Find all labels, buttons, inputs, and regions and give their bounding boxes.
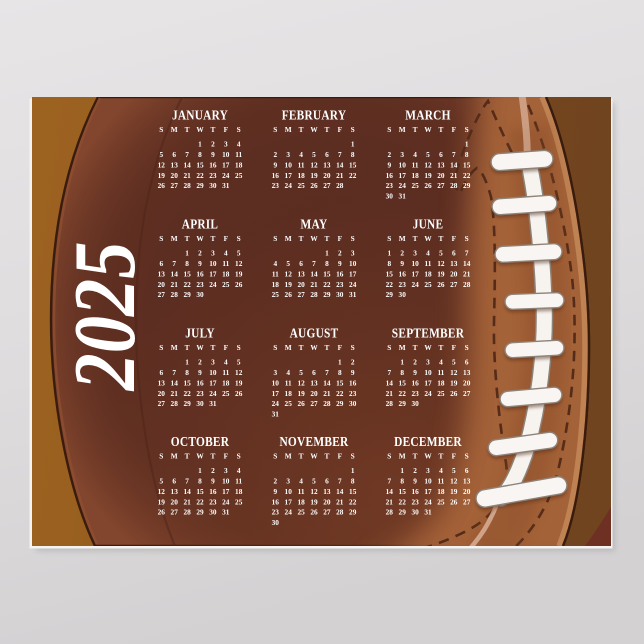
svg-text:10: 10: [411, 259, 419, 268]
svg-text:20: 20: [323, 497, 331, 506]
svg-text:22: 22: [386, 280, 394, 289]
svg-text:22: 22: [349, 171, 357, 180]
svg-text:31: 31: [272, 410, 280, 419]
svg-text:27: 27: [297, 290, 305, 299]
svg-text:28: 28: [323, 399, 331, 408]
svg-text:27: 27: [437, 181, 445, 190]
svg-text:T: T: [438, 125, 443, 134]
svg-text:2: 2: [198, 249, 202, 258]
svg-text:8: 8: [351, 150, 355, 159]
svg-text:5: 5: [452, 466, 456, 475]
svg-text:W: W: [424, 451, 432, 460]
svg-text:JUNE: JUNE: [413, 217, 444, 232]
svg-text:18: 18: [285, 389, 293, 398]
svg-text:19: 19: [424, 171, 432, 180]
svg-text:22: 22: [183, 280, 191, 289]
svg-text:15: 15: [336, 378, 344, 387]
svg-text:F: F: [452, 343, 457, 352]
svg-text:T: T: [413, 343, 418, 352]
svg-text:21: 21: [336, 497, 344, 506]
svg-text:26: 26: [297, 399, 305, 408]
svg-text:21: 21: [323, 389, 331, 398]
svg-text:5: 5: [439, 249, 443, 258]
svg-text:1: 1: [338, 358, 342, 367]
svg-text:30: 30: [209, 508, 217, 517]
svg-text:18: 18: [424, 269, 432, 278]
svg-text:23: 23: [336, 280, 344, 289]
svg-text:11: 11: [222, 368, 229, 377]
svg-text:10: 10: [272, 378, 280, 387]
svg-text:30: 30: [272, 518, 280, 527]
svg-text:T: T: [185, 234, 190, 243]
svg-text:T: T: [210, 234, 215, 243]
svg-text:28: 28: [183, 508, 191, 517]
svg-text:25: 25: [411, 181, 419, 190]
svg-text:16: 16: [399, 269, 407, 278]
svg-text:W: W: [424, 125, 432, 134]
svg-text:28: 28: [336, 181, 344, 190]
svg-text:20: 20: [450, 269, 458, 278]
svg-text:6: 6: [465, 358, 469, 367]
svg-text:M: M: [399, 234, 406, 243]
svg-text:15: 15: [349, 160, 357, 169]
svg-text:30: 30: [349, 399, 357, 408]
svg-text:S: S: [273, 451, 277, 460]
svg-text:15: 15: [183, 378, 191, 387]
svg-text:16: 16: [196, 378, 204, 387]
svg-text:13: 13: [310, 378, 318, 387]
svg-text:2: 2: [198, 358, 202, 367]
svg-text:T: T: [438, 343, 443, 352]
svg-text:31: 31: [222, 181, 230, 190]
svg-text:29: 29: [463, 181, 471, 190]
svg-text:DECEMBER: DECEMBER: [394, 434, 462, 449]
svg-text:12: 12: [235, 259, 243, 268]
svg-text:12: 12: [437, 259, 445, 268]
svg-text:13: 13: [463, 368, 471, 377]
svg-text:17: 17: [222, 160, 230, 169]
svg-text:21: 21: [450, 171, 458, 180]
svg-text:12: 12: [285, 269, 293, 278]
svg-text:F: F: [338, 343, 343, 352]
svg-text:19: 19: [158, 171, 166, 180]
svg-text:2: 2: [413, 358, 417, 367]
svg-text:15: 15: [183, 269, 191, 278]
svg-text:23: 23: [272, 181, 280, 190]
svg-text:S: S: [351, 234, 355, 243]
svg-text:26: 26: [310, 508, 318, 517]
svg-text:1: 1: [351, 466, 355, 475]
svg-text:W: W: [196, 451, 204, 460]
svg-text:13: 13: [171, 487, 179, 496]
svg-text:2: 2: [211, 466, 215, 475]
svg-text:F: F: [224, 451, 229, 460]
svg-text:20: 20: [158, 280, 166, 289]
svg-text:31: 31: [222, 508, 230, 517]
svg-text:T: T: [185, 451, 190, 460]
svg-text:F: F: [338, 451, 343, 460]
svg-text:6: 6: [172, 150, 176, 159]
svg-text:14: 14: [386, 487, 394, 496]
svg-text:5: 5: [452, 358, 456, 367]
svg-text:15: 15: [399, 378, 407, 387]
svg-text:S: S: [237, 125, 241, 134]
svg-text:F: F: [224, 343, 229, 352]
svg-text:21: 21: [386, 389, 394, 398]
svg-text:22: 22: [399, 497, 407, 506]
svg-text:2: 2: [351, 358, 355, 367]
svg-text:20: 20: [171, 497, 179, 506]
svg-text:13: 13: [437, 160, 445, 169]
svg-text:5: 5: [312, 477, 316, 486]
svg-text:12: 12: [158, 160, 166, 169]
svg-text:31: 31: [349, 290, 357, 299]
svg-text:1: 1: [351, 140, 355, 149]
svg-text:22: 22: [399, 389, 407, 398]
svg-text:T: T: [324, 125, 329, 134]
svg-text:28: 28: [463, 280, 471, 289]
svg-text:5: 5: [299, 368, 303, 377]
svg-text:4: 4: [299, 477, 303, 486]
svg-text:W: W: [196, 343, 204, 352]
svg-text:18: 18: [297, 497, 305, 506]
svg-text:29: 29: [399, 508, 407, 517]
svg-text:10: 10: [222, 150, 230, 159]
svg-text:8: 8: [400, 477, 404, 486]
svg-text:T: T: [324, 451, 329, 460]
svg-text:27: 27: [158, 399, 166, 408]
svg-text:9: 9: [198, 368, 202, 377]
svg-text:14: 14: [310, 269, 318, 278]
svg-text:30: 30: [196, 399, 204, 408]
svg-text:5: 5: [426, 150, 430, 159]
svg-text:17: 17: [424, 378, 432, 387]
svg-text:21: 21: [171, 389, 179, 398]
svg-text:17: 17: [222, 487, 230, 496]
svg-text:8: 8: [325, 259, 329, 268]
svg-text:S: S: [465, 451, 469, 460]
svg-text:16: 16: [349, 378, 357, 387]
svg-text:S: S: [159, 451, 163, 460]
svg-text:24: 24: [222, 171, 230, 180]
svg-text:23: 23: [209, 171, 217, 180]
svg-text:9: 9: [211, 477, 215, 486]
svg-text:13: 13: [158, 378, 166, 387]
svg-text:25: 25: [437, 497, 445, 506]
svg-text:S: S: [387, 234, 391, 243]
svg-text:25: 25: [424, 280, 432, 289]
svg-text:24: 24: [209, 389, 217, 398]
svg-text:23: 23: [196, 389, 204, 398]
svg-text:11: 11: [425, 259, 432, 268]
svg-text:18: 18: [222, 269, 230, 278]
svg-text:23: 23: [411, 389, 419, 398]
svg-text:11: 11: [272, 269, 279, 278]
svg-text:4: 4: [237, 140, 241, 149]
svg-text:19: 19: [310, 171, 318, 180]
svg-text:24: 24: [411, 280, 419, 289]
svg-text:W: W: [310, 125, 318, 134]
svg-text:23: 23: [272, 508, 280, 517]
svg-text:20: 20: [323, 171, 331, 180]
svg-text:16: 16: [209, 487, 217, 496]
svg-text:12: 12: [235, 368, 243, 377]
svg-text:11: 11: [298, 487, 305, 496]
svg-text:6: 6: [159, 368, 163, 377]
svg-text:20: 20: [297, 280, 305, 289]
svg-text:28: 28: [450, 181, 458, 190]
svg-text:12: 12: [424, 160, 432, 169]
svg-text:24: 24: [424, 497, 432, 506]
svg-text:7: 7: [338, 477, 342, 486]
svg-text:11: 11: [285, 378, 292, 387]
svg-text:27: 27: [323, 181, 331, 190]
svg-text:10: 10: [349, 259, 357, 268]
svg-text:14: 14: [171, 269, 179, 278]
svg-text:M: M: [285, 451, 292, 460]
svg-text:1: 1: [465, 140, 469, 149]
svg-text:29: 29: [336, 399, 344, 408]
svg-text:20: 20: [310, 389, 318, 398]
svg-text:OCTOBER: OCTOBER: [171, 434, 230, 449]
svg-text:30: 30: [399, 290, 407, 299]
svg-text:24: 24: [424, 389, 432, 398]
svg-text:10: 10: [209, 259, 217, 268]
svg-text:S: S: [159, 125, 163, 134]
svg-text:5: 5: [286, 259, 290, 268]
svg-text:18: 18: [272, 280, 280, 289]
svg-text:5: 5: [159, 150, 163, 159]
svg-text:27: 27: [158, 290, 166, 299]
svg-text:18: 18: [437, 487, 445, 496]
svg-text:21: 21: [171, 280, 179, 289]
svg-text:29: 29: [196, 508, 204, 517]
svg-text:29: 29: [323, 290, 331, 299]
svg-text:8: 8: [198, 477, 202, 486]
svg-text:T: T: [299, 451, 304, 460]
svg-text:10: 10: [222, 477, 230, 486]
svg-text:17: 17: [209, 269, 217, 278]
svg-text:M: M: [399, 125, 406, 134]
svg-text:17: 17: [424, 487, 432, 496]
svg-text:13: 13: [450, 259, 458, 268]
svg-text:14: 14: [171, 378, 179, 387]
svg-text:23: 23: [349, 389, 357, 398]
svg-text:28: 28: [336, 508, 344, 517]
svg-text:16: 16: [411, 487, 419, 496]
svg-text:M: M: [171, 234, 178, 243]
svg-text:28: 28: [171, 290, 179, 299]
svg-text:T: T: [299, 234, 304, 243]
svg-text:14: 14: [183, 487, 191, 496]
svg-text:22: 22: [349, 497, 357, 506]
svg-text:2: 2: [413, 466, 417, 475]
svg-text:24: 24: [349, 280, 357, 289]
svg-text:6: 6: [172, 477, 176, 486]
svg-text:25: 25: [222, 389, 230, 398]
svg-text:19: 19: [450, 378, 458, 387]
svg-text:3: 3: [286, 150, 290, 159]
svg-text:S: S: [273, 234, 277, 243]
svg-text:13: 13: [171, 160, 179, 169]
svg-text:19: 19: [235, 378, 243, 387]
svg-text:29: 29: [386, 290, 394, 299]
svg-text:1: 1: [400, 466, 404, 475]
svg-text:T: T: [438, 451, 443, 460]
svg-text:26: 26: [235, 280, 243, 289]
svg-text:F: F: [452, 125, 457, 134]
svg-text:27: 27: [450, 280, 458, 289]
svg-text:10: 10: [424, 368, 432, 377]
svg-text:6: 6: [465, 466, 469, 475]
svg-text:T: T: [210, 125, 215, 134]
svg-text:W: W: [424, 234, 432, 243]
svg-text:9: 9: [387, 160, 391, 169]
svg-text:27: 27: [171, 181, 179, 190]
svg-text:T: T: [324, 234, 329, 243]
svg-text:28: 28: [171, 399, 179, 408]
svg-text:9: 9: [211, 150, 215, 159]
svg-text:25: 25: [285, 399, 293, 408]
svg-text:26: 26: [437, 280, 445, 289]
svg-text:NOVEMBER: NOVEMBER: [279, 434, 348, 449]
svg-text:18: 18: [437, 378, 445, 387]
svg-text:22: 22: [196, 171, 204, 180]
svg-text:S: S: [465, 125, 469, 134]
svg-text:23: 23: [386, 181, 394, 190]
svg-text:24: 24: [285, 508, 293, 517]
svg-text:4: 4: [413, 150, 417, 159]
svg-text:12: 12: [310, 487, 318, 496]
svg-text:26: 26: [450, 389, 458, 398]
svg-text:4: 4: [273, 259, 277, 268]
svg-text:3: 3: [273, 368, 277, 377]
svg-text:26: 26: [310, 181, 318, 190]
svg-text:4: 4: [237, 466, 241, 475]
svg-text:24: 24: [272, 399, 280, 408]
svg-text:11: 11: [437, 477, 444, 486]
svg-text:APRIL: APRIL: [182, 217, 218, 232]
svg-text:2: 2: [273, 477, 277, 486]
svg-text:F: F: [452, 234, 457, 243]
svg-text:28: 28: [310, 290, 318, 299]
svg-text:22: 22: [183, 389, 191, 398]
svg-text:M: M: [171, 451, 178, 460]
svg-text:S: S: [387, 343, 391, 352]
svg-text:S: S: [237, 234, 241, 243]
svg-text:2: 2: [338, 249, 342, 258]
svg-text:W: W: [196, 234, 204, 243]
svg-text:16: 16: [386, 171, 394, 180]
svg-text:13: 13: [323, 487, 331, 496]
svg-text:18: 18: [222, 378, 230, 387]
svg-text:9: 9: [351, 368, 355, 377]
svg-text:5: 5: [159, 477, 163, 486]
svg-text:21: 21: [386, 497, 394, 506]
svg-text:19: 19: [158, 497, 166, 506]
svg-text:14: 14: [323, 378, 331, 387]
svg-text:25: 25: [272, 290, 280, 299]
svg-text:1: 1: [400, 358, 404, 367]
svg-text:7: 7: [387, 477, 391, 486]
svg-text:18: 18: [297, 171, 305, 180]
svg-text:MAY: MAY: [301, 217, 328, 232]
svg-text:T: T: [413, 234, 418, 243]
svg-text:2: 2: [387, 150, 391, 159]
svg-text:T: T: [210, 451, 215, 460]
svg-text:9: 9: [338, 259, 342, 268]
svg-text:15: 15: [196, 487, 204, 496]
svg-text:12: 12: [450, 477, 458, 486]
svg-text:9: 9: [413, 477, 417, 486]
svg-text:18: 18: [235, 487, 243, 496]
svg-text:11: 11: [412, 160, 419, 169]
svg-text:S: S: [351, 451, 355, 460]
svg-text:16: 16: [196, 269, 204, 278]
svg-text:7: 7: [465, 249, 469, 258]
svg-text:SEPTEMBER: SEPTEMBER: [392, 326, 464, 341]
svg-text:14: 14: [336, 160, 344, 169]
svg-text:7: 7: [172, 259, 176, 268]
svg-text:19: 19: [235, 269, 243, 278]
svg-text:16: 16: [272, 497, 280, 506]
svg-text:14: 14: [336, 487, 344, 496]
svg-text:10: 10: [285, 487, 293, 496]
svg-text:26: 26: [158, 181, 166, 190]
svg-text:27: 27: [171, 508, 179, 517]
svg-text:14: 14: [386, 378, 394, 387]
svg-text:25: 25: [297, 181, 305, 190]
svg-text:29: 29: [183, 290, 191, 299]
svg-text:4: 4: [224, 358, 228, 367]
svg-text:10: 10: [399, 160, 407, 169]
svg-text:25: 25: [235, 171, 243, 180]
svg-text:2: 2: [273, 150, 277, 159]
svg-text:27: 27: [463, 389, 471, 398]
svg-text:12: 12: [310, 160, 318, 169]
svg-text:24: 24: [285, 181, 293, 190]
svg-text:7: 7: [172, 368, 176, 377]
svg-text:M: M: [171, 343, 178, 352]
svg-text:21: 21: [336, 171, 344, 180]
svg-text:21: 21: [183, 171, 191, 180]
svg-text:23: 23: [196, 280, 204, 289]
svg-text:7: 7: [452, 150, 456, 159]
svg-text:23: 23: [399, 280, 407, 289]
svg-text:13: 13: [297, 269, 305, 278]
svg-text:10: 10: [209, 368, 217, 377]
svg-text:F: F: [338, 234, 343, 243]
svg-text:M: M: [171, 125, 178, 134]
svg-text:JANUARY: JANUARY: [172, 108, 228, 123]
svg-text:8: 8: [351, 477, 355, 486]
svg-text:M: M: [285, 125, 292, 134]
svg-text:MARCH: MARCH: [405, 108, 451, 123]
svg-text:1: 1: [387, 249, 391, 258]
svg-text:4: 4: [439, 466, 443, 475]
svg-text:W: W: [424, 343, 432, 352]
svg-text:27: 27: [310, 399, 318, 408]
svg-text:7: 7: [338, 150, 342, 159]
svg-text:T: T: [299, 343, 304, 352]
svg-text:S: S: [237, 343, 241, 352]
svg-text:27: 27: [463, 497, 471, 506]
svg-text:4: 4: [426, 249, 430, 258]
svg-text:20: 20: [158, 389, 166, 398]
svg-text:24: 24: [222, 497, 230, 506]
svg-text:24: 24: [399, 181, 407, 190]
svg-text:25: 25: [437, 389, 445, 398]
